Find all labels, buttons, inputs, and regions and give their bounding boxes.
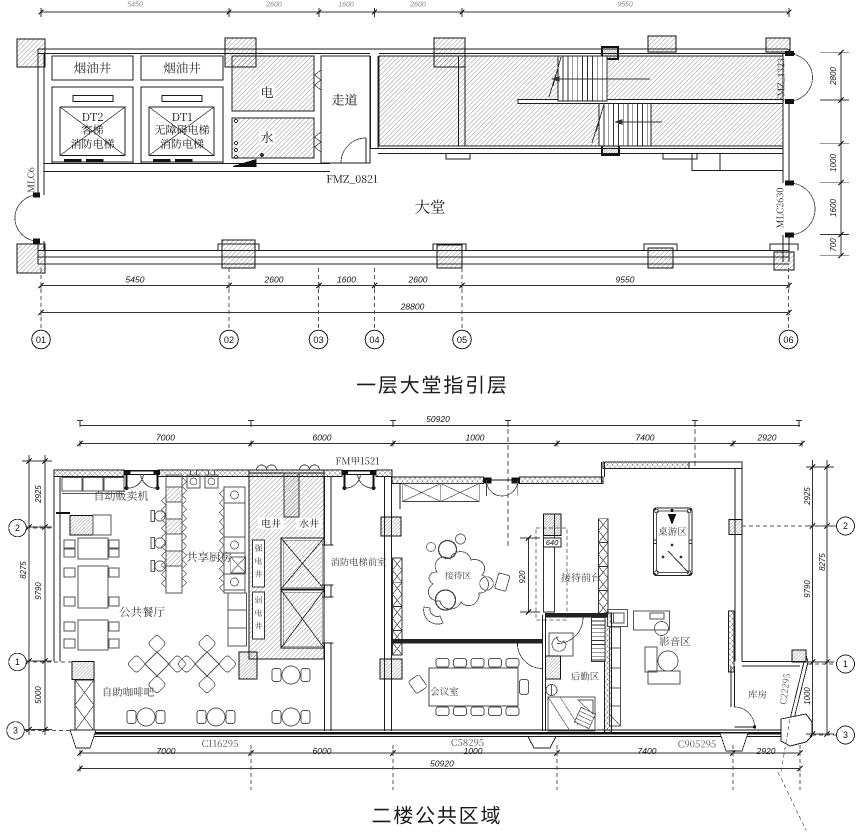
svg-text:1600: 1600 bbox=[829, 199, 838, 217]
svg-text:7400: 7400 bbox=[638, 746, 657, 756]
svg-text:2600: 2600 bbox=[265, 2, 282, 9]
svg-text:2920: 2920 bbox=[756, 746, 776, 756]
svg-text:1000: 1000 bbox=[829, 154, 838, 172]
svg-text:3: 3 bbox=[843, 730, 848, 740]
svg-text:8275: 8275 bbox=[818, 553, 827, 571]
svg-text:5450: 5450 bbox=[126, 275, 145, 285]
svg-text:2920: 2920 bbox=[757, 433, 777, 443]
svg-text:5000: 5000 bbox=[34, 686, 43, 704]
svg-text:6000: 6000 bbox=[313, 746, 332, 756]
svg-text:7000: 7000 bbox=[157, 746, 176, 756]
svg-text:700: 700 bbox=[829, 238, 838, 252]
svg-text:1000: 1000 bbox=[466, 433, 485, 443]
svg-text:06: 06 bbox=[783, 335, 793, 345]
svg-text:5450: 5450 bbox=[127, 2, 143, 9]
svg-text:50920: 50920 bbox=[430, 759, 454, 769]
svg-text:01: 01 bbox=[36, 335, 46, 345]
svg-text:2: 2 bbox=[843, 521, 848, 531]
svg-text:1: 1 bbox=[15, 657, 20, 667]
svg-text:3: 3 bbox=[13, 726, 18, 736]
svg-text:04: 04 bbox=[369, 335, 379, 345]
svg-text:7000: 7000 bbox=[156, 433, 175, 443]
svg-text:1000: 1000 bbox=[464, 746, 483, 756]
svg-text:2: 2 bbox=[15, 523, 20, 533]
svg-text:8275: 8275 bbox=[19, 561, 28, 579]
svg-text:6000: 6000 bbox=[313, 433, 332, 443]
svg-text:2600: 2600 bbox=[264, 275, 284, 285]
svg-text:2600: 2600 bbox=[408, 275, 428, 285]
svg-text:920: 920 bbox=[518, 570, 527, 584]
svg-text:9790: 9790 bbox=[803, 580, 812, 598]
svg-text:2925: 2925 bbox=[34, 485, 43, 504]
svg-text:02: 02 bbox=[224, 335, 234, 345]
svg-text:03: 03 bbox=[313, 335, 323, 345]
svg-text:1600: 1600 bbox=[338, 2, 354, 9]
svg-text:28800: 28800 bbox=[400, 302, 425, 312]
svg-text:640: 640 bbox=[546, 538, 559, 547]
svg-text:9790: 9790 bbox=[34, 582, 43, 600]
svg-text:2800: 2800 bbox=[829, 67, 838, 86]
svg-text:2600: 2600 bbox=[409, 2, 426, 9]
svg-text:1000: 1000 bbox=[803, 687, 812, 705]
svg-text:9550: 9550 bbox=[616, 275, 635, 285]
svg-text:9550: 9550 bbox=[617, 2, 633, 9]
svg-text:1: 1 bbox=[843, 659, 848, 669]
svg-text:1600: 1600 bbox=[337, 275, 356, 285]
svg-text:2925: 2925 bbox=[803, 487, 812, 506]
svg-text:7400: 7400 bbox=[636, 433, 655, 443]
svg-text:50920: 50920 bbox=[426, 414, 450, 424]
svg-text:05: 05 bbox=[457, 335, 467, 345]
